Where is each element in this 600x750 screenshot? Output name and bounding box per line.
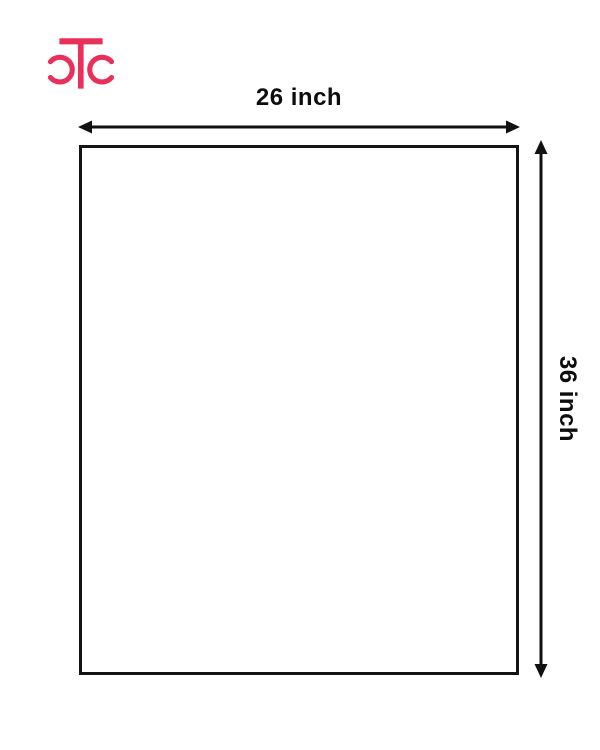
height-arrow-top-head [535, 140, 548, 154]
logo-left-c [50, 57, 72, 82]
width-dimension-label: 26 inch [79, 84, 519, 112]
dimension-diagram: 26 inch 36 inch [0, 0, 600, 750]
height-dimension-label: 36 inch [552, 339, 582, 459]
width-arrow-icon [76, 117, 522, 137]
height-arrow-bottom-head [535, 664, 548, 678]
logo-right-c [90, 57, 112, 82]
width-arrow-right-head [506, 121, 520, 134]
product-outline-rectangle [79, 145, 519, 675]
height-arrow-icon [531, 138, 551, 680]
width-arrow-left-head [78, 121, 92, 134]
